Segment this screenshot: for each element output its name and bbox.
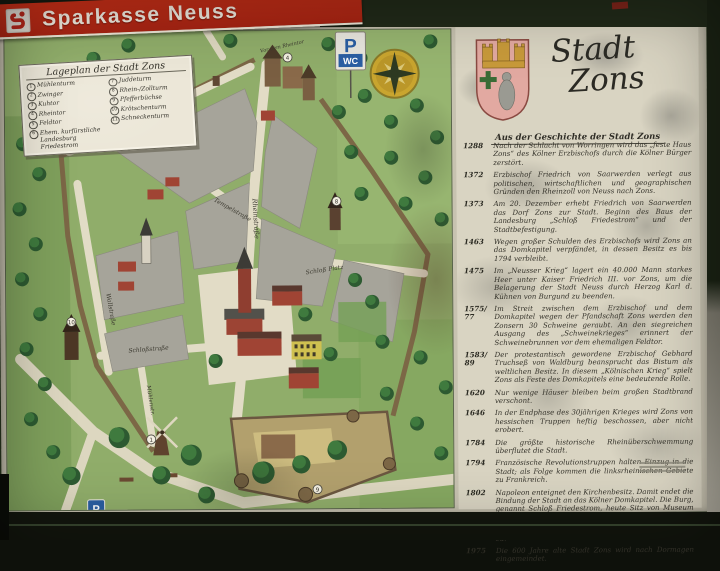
timeline-year: 1372: [463, 171, 488, 196]
parking-sign-lower: P: [88, 500, 105, 511]
banner-brand-text: Sparkasse Neuss: [42, 0, 239, 29]
timeline-year: 1583/89: [465, 351, 490, 385]
timeline-year: 1475: [464, 267, 489, 301]
photo-corner-shadow: [0, 474, 9, 540]
timeline-year: 1646: [465, 409, 490, 434]
timeline-entry: 1373 Am 20. Dezember erhebt Friedrich vo…: [464, 199, 692, 234]
legend-number: 5: [29, 120, 38, 129]
timeline-year: 1794: [465, 459, 490, 484]
timeline-entry: 1475 Im „Neusser Krieg“ lagert ein 40.00…: [464, 266, 692, 301]
timeline-text: Die 600 Jahre alte Stadt Zons wird nach …: [496, 546, 694, 564]
legend-label: Rheintor: [39, 109, 66, 118]
timeline-entry: 1975 Die 600 Jahre alte Stadt Zons wird …: [466, 546, 694, 564]
timeline-text: Nur wenige Häuser bleiben beim großen St…: [495, 387, 693, 405]
timeline-entry: 1463 Wegen großer Schulden des Erzbischo…: [464, 237, 692, 264]
map-legend: Lageplan der Stadt Zons 1 Mühlenturm 2: [18, 55, 197, 157]
photo-bottom-edge: [0, 512, 720, 540]
legend-item: 6 Ehem. kurfürstliche Landesburg Friedes…: [29, 125, 108, 151]
parking-letter: P: [344, 36, 357, 57]
sparkasse-logo-icon: [6, 8, 31, 33]
legend-label: Rhein-/Zollturm: [119, 84, 168, 94]
title-line-2: Zons: [568, 63, 646, 98]
timeline-text: Der protestantisch gewordene Erzbischof …: [495, 350, 693, 385]
timeline-text: Wegen großer Schulden des Erzbischofs wi…: [494, 237, 692, 264]
photo-right-edge: [707, 0, 720, 540]
legend-number: 2: [27, 92, 36, 101]
page-title: Stadt Zons: [550, 32, 646, 99]
timeline-year: 1288: [463, 142, 488, 167]
photo-of-town-sign: P WC P 1 4 8 9 10 Mauers: [0, 0, 720, 540]
legend-number: 7: [108, 78, 117, 87]
legend-number: 4: [28, 111, 37, 120]
timeline-entry: 1372 Erzbischof Friedrich von Saarwerden…: [463, 170, 691, 197]
timeline-text: Erzbischof Friedrich von Saarwerden verl…: [493, 170, 691, 197]
legend-number: 8: [109, 87, 118, 96]
timeline-entry: 1646 In der Endphase des 30jährigen Krie…: [465, 408, 693, 435]
timeline-entry: 1784 Die größte historische Rheinübersch…: [465, 437, 693, 455]
town-map: P WC P 1 4 8 9 10 Mauers: [4, 29, 453, 510]
legend-label: Mühlenturm: [37, 80, 75, 89]
svg-text:9: 9: [316, 488, 320, 494]
timeline-text: Die größte historische Rheinüberschwemmu…: [495, 437, 693, 455]
legend-column-1: 1 Mühlenturm 2 Zwinger 3 Kuhtor: [26, 78, 108, 152]
svg-text:8: 8: [335, 199, 339, 205]
timeline-year: 1463: [464, 238, 489, 263]
legend-label: Schneckenturm: [121, 112, 169, 122]
legend-label: Krötschenturm: [120, 103, 166, 113]
timeline-entry: 1583/89 Der protestantisch gewordene Erz…: [465, 350, 693, 385]
legend-number: 6: [29, 130, 38, 139]
svg-text:P: P: [92, 504, 99, 511]
compass-rose-icon: [370, 50, 418, 98]
legend-number: 1: [26, 83, 35, 92]
legend-column-2: 7 Juddeturm 8 Rhein-/Zollturm 9 Pf: [108, 73, 190, 147]
timeline-year: 1373: [464, 200, 489, 234]
legend-number: 9: [109, 97, 118, 106]
timeline-entry: 1620 Nur wenige Häuser bleiben beim groß…: [465, 387, 693, 405]
zons-coat-of-arms: [473, 37, 532, 123]
legend-label: Kuhtor: [38, 100, 59, 108]
svg-text:1: 1: [149, 438, 153, 444]
legend-label: Juddeturm: [119, 75, 152, 84]
legend-label: Pfefferbüchse: [120, 93, 162, 102]
timeline-text: In der Endphase des 30jährigen Krieges w…: [495, 408, 693, 435]
board-mat: P WC P 1 4 8 9 10 Mauers: [0, 20, 710, 517]
history-panel: Stadt Zons Aus der Geschichte der Stadt …: [455, 26, 701, 510]
legend-number: 11: [110, 116, 119, 125]
timeline-text: Im Streit zwischen dem Erzbischof und de…: [494, 304, 692, 347]
timeline-entry: 1575/77 Im Streit zwischen dem Erzbischo…: [464, 304, 692, 348]
frame-top-edge: [320, 0, 720, 27]
credit-lines: [639, 462, 685, 474]
timeline-text: Am 20. Dezember erhebt Friedrich von Saa…: [494, 199, 692, 234]
legend-label: Ehem. kurfürstliche Landesburg Friedestr…: [40, 125, 109, 150]
timeline-year: 1620: [465, 389, 490, 406]
legend-number: 3: [27, 101, 36, 110]
timeline-year: 1784: [465, 439, 490, 456]
wc-letters: WC: [343, 56, 359, 66]
timeline-year: 1575/77: [464, 305, 489, 347]
history-timeline: 1288 Nach der Schlacht von Worringen wir…: [463, 141, 694, 568]
legend-label: Zwinger: [37, 90, 63, 98]
timeline-text: Nach der Schlacht von Worringen wird das…: [493, 141, 691, 168]
legend-label: Feldtor: [39, 119, 61, 127]
svg-text:4: 4: [286, 56, 290, 62]
timeline-text: Im „Neusser Krieg“ lagert ein 40.000 Man…: [494, 266, 692, 301]
timeline-year: 1975: [466, 547, 491, 564]
timeline-entry: 1288 Nach der Schlacht von Worringen wir…: [463, 141, 691, 168]
svg-text:10: 10: [68, 320, 76, 326]
frame-red-mark: [612, 1, 628, 9]
legend-number: 10: [110, 106, 119, 115]
